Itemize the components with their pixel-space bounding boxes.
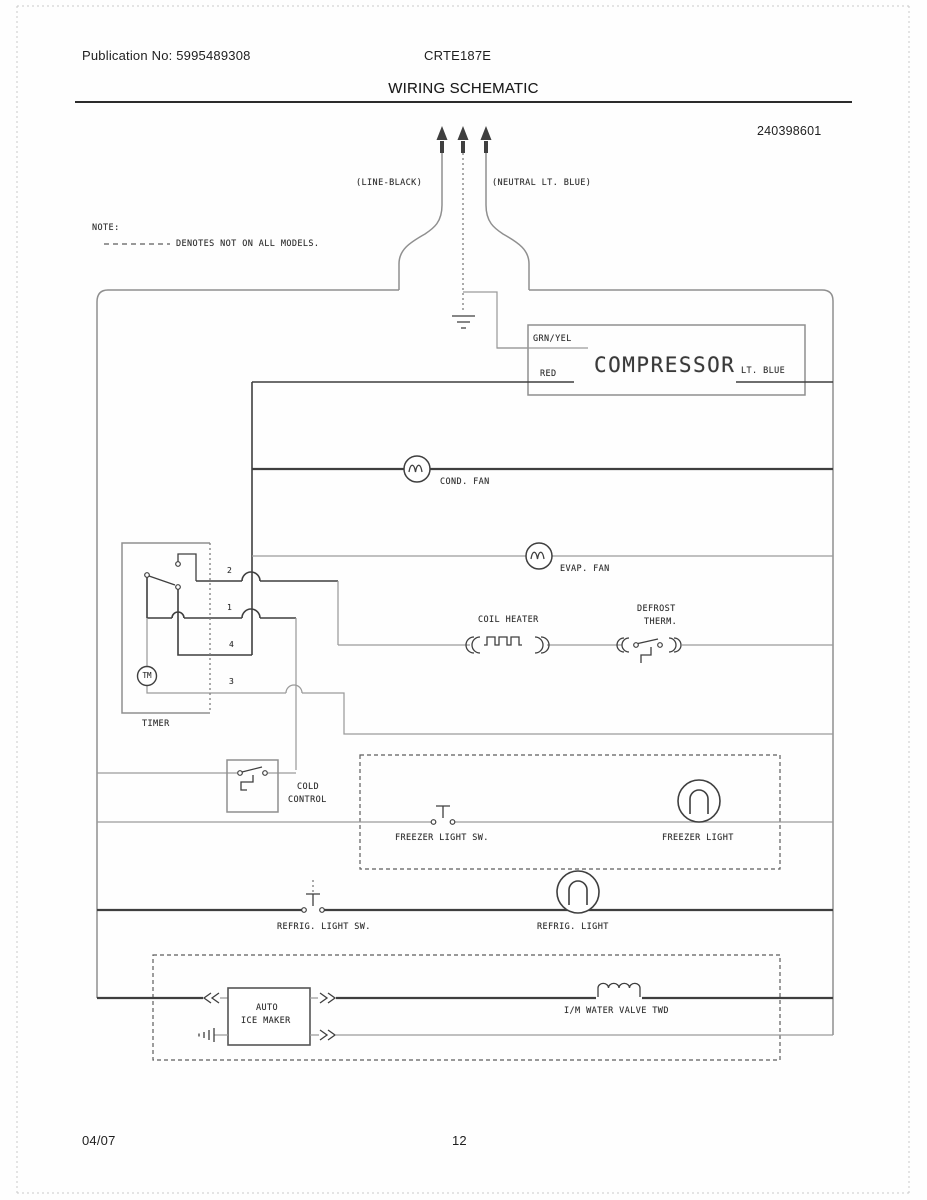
- schematic-page: Publication No: 5995489308 CRTE187E WIRI…: [0, 0, 927, 1200]
- freezer-light-switch-symbol: [431, 806, 455, 824]
- timer-terminal-1: 1: [227, 603, 232, 613]
- timer-motor-label: TM: [138, 671, 156, 681]
- ice-maker-circuit: [97, 955, 833, 1060]
- part-number: 240398601: [757, 126, 821, 136]
- page-title: WIRING SCHEMATIC: [0, 84, 927, 94]
- compressor-label: COMPRESSOR: [594, 360, 735, 370]
- grn-yel-label: GRN/YEL: [533, 334, 572, 344]
- publication-number: Publication No: 5995489308: [82, 51, 251, 61]
- refrig-light-lamp-symbol: [557, 871, 599, 913]
- neutral-lt-blue-label: (NEUTRAL LT. BLUE): [492, 178, 591, 188]
- refrig-light-switch-label: REFRIG. LIGHT SW.: [277, 922, 371, 932]
- timer-box: [122, 543, 210, 713]
- cold-control-label-line1: COLD: [297, 782, 319, 792]
- freezer-light-switch-label: FREEZER LIGHT SW.: [395, 833, 489, 843]
- model-number: CRTE187E: [424, 51, 491, 61]
- red-label: RED: [540, 369, 557, 379]
- water-valve-label: I/M WATER VALVE TWD: [564, 1006, 669, 1016]
- cond-fan-motor-symbol: [252, 456, 833, 482]
- note-heading: NOTE:: [92, 223, 120, 233]
- freezer-light-lamp-symbol: [678, 780, 720, 822]
- water-valve-coil-symbol: [598, 983, 640, 997]
- circuit-border: [97, 290, 833, 1035]
- freezer-light-circuit: [97, 755, 833, 869]
- timer-terminal-4: 4: [229, 640, 234, 650]
- timer-switch-symbol: [145, 554, 196, 589]
- ground-symbol: [452, 292, 528, 348]
- ice-maker-label-line2: ICE MAKER: [241, 1016, 291, 1026]
- timer-terminal-3: 3: [229, 677, 234, 687]
- wiring-svg: [0, 0, 927, 1200]
- note-text: DENOTES NOT ON ALL MODELS.: [176, 239, 319, 249]
- defrost-therm-label-line1: DEFROST: [637, 604, 676, 614]
- ice-maker-label-line1: AUTO: [256, 1003, 278, 1013]
- timer-wires: [147, 572, 833, 770]
- refrig-light-circuit: [97, 871, 833, 913]
- cold-control-label-line2: CONTROL: [288, 795, 327, 805]
- cond-fan-label: COND. FAN: [440, 477, 490, 487]
- evap-fan-label: EVAP. FAN: [560, 564, 610, 574]
- ice-maker-ground-symbol: [199, 1028, 228, 1042]
- freezer-light-label: FREEZER LIGHT: [662, 833, 734, 843]
- evap-fan-motor-symbol: [252, 543, 833, 569]
- power-plug-symbol: [399, 126, 529, 313]
- cold-control-symbol: [97, 760, 296, 812]
- line-black-label: (LINE-BLACK): [356, 178, 422, 188]
- header-rule: [75, 101, 852, 103]
- defrost-thermostat-symbol: [617, 638, 681, 663]
- refrig-light-switch-symbol: [302, 878, 325, 912]
- footer-page-number: 12: [452, 1136, 467, 1146]
- refrig-light-label: REFRIG. LIGHT: [537, 922, 609, 932]
- timer-label: TIMER: [142, 719, 170, 729]
- lt-blue-label: LT. BLUE: [741, 366, 785, 376]
- coil-heater-symbol: [338, 637, 833, 653]
- footer-date: 04/07: [82, 1136, 116, 1146]
- coil-heater-label: COIL HEATER: [478, 615, 539, 625]
- defrost-therm-label-line2: THERM.: [644, 617, 677, 627]
- timer-terminal-2: 2: [227, 566, 232, 576]
